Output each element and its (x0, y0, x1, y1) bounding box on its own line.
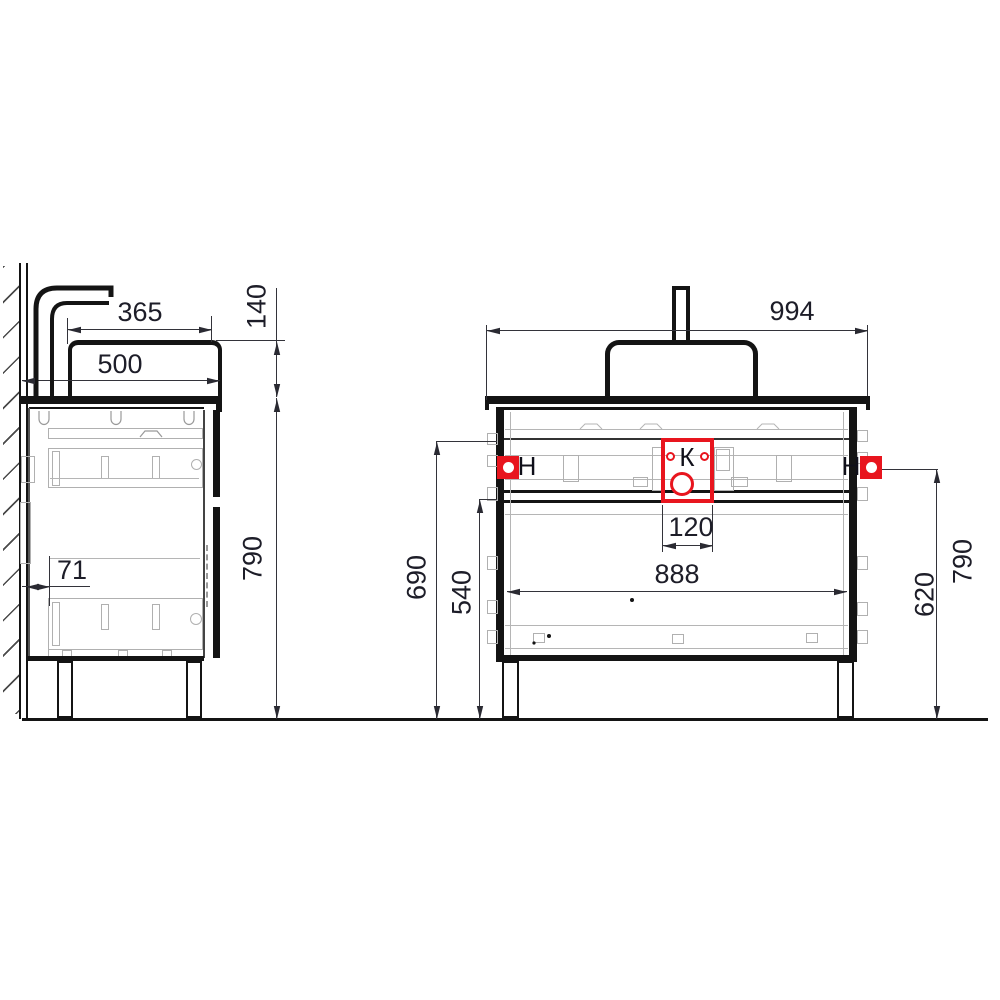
dim-label-outlet-height: 620 (912, 550, 939, 640)
drawing-overlay (0, 0, 1000, 1000)
dim-label-drain-offset: 120 (646, 514, 736, 541)
dimension-arrows (22, 327, 940, 719)
front-wavy-notches (580, 424, 779, 429)
drain-label: К (672, 444, 702, 470)
right-outlet-label: Н (836, 453, 866, 479)
dim-label-inner-width: 888 (632, 561, 722, 588)
dim-label-wall-offset: 71 (27, 557, 117, 584)
dim-label-total-depth: 500 (75, 351, 165, 378)
detail-specks (532, 598, 634, 645)
dim-label-drawer-zone-height: 540 (449, 548, 476, 638)
dim-label-side-total-height: 790 (240, 514, 267, 604)
side-drawer-clips (39, 411, 194, 437)
left-outlet-label: Н (512, 453, 542, 479)
dim-label-basin-depth: 365 (95, 299, 185, 326)
dim-label-front-total-height: 790 (950, 517, 977, 607)
technical-drawing-canvas: 365 500 140 790 71 994 120 888 690 540 6… (0, 0, 1000, 1000)
dim-label-left-height: 690 (404, 533, 431, 623)
dim-label-basin-height: 140 (244, 262, 271, 352)
dim-label-total-width: 994 (747, 298, 837, 325)
